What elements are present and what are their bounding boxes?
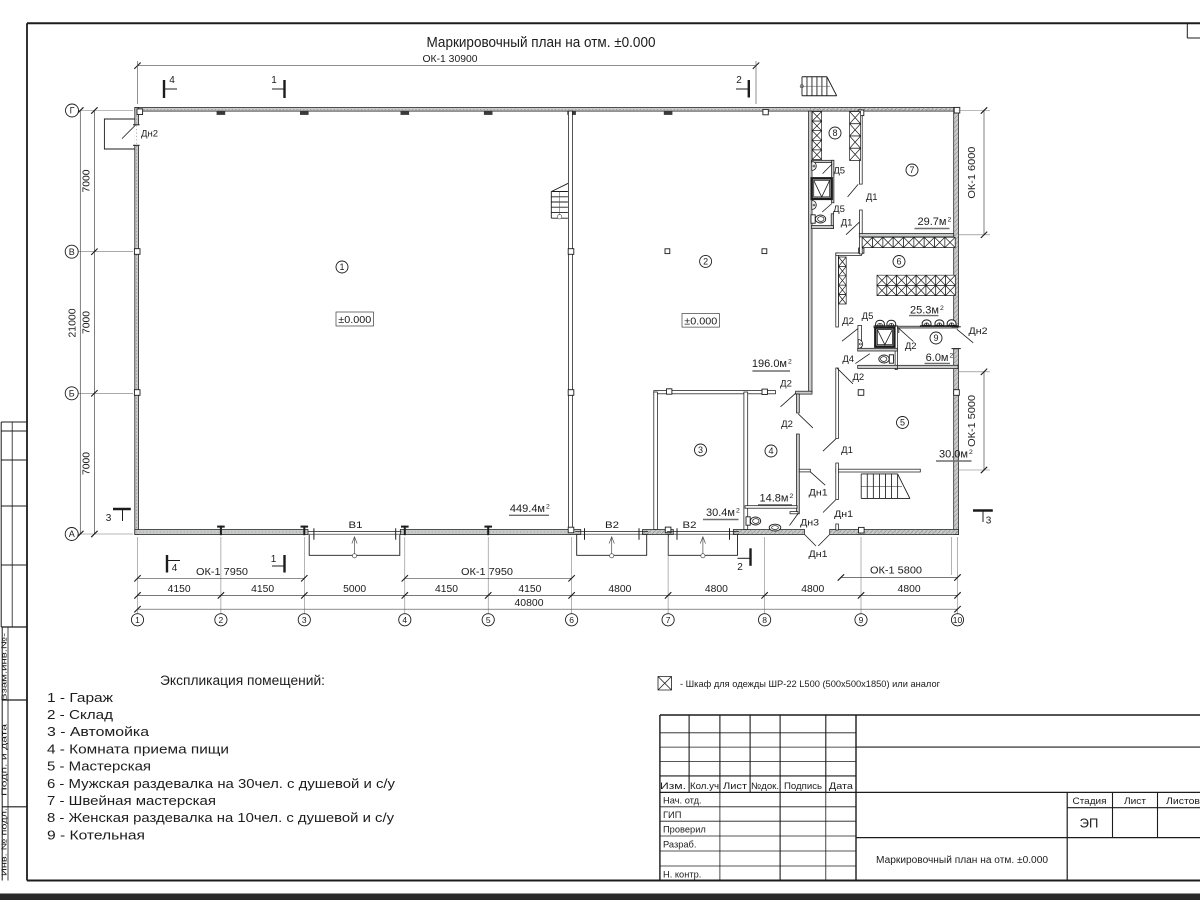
svg-text:30.4м: 30.4м — [706, 507, 735, 519]
svg-text:4150: 4150 — [251, 584, 274, 595]
svg-text:2: 2 — [736, 75, 742, 86]
svg-text:2: 2 — [950, 353, 954, 360]
svg-text:Д2: Д2 — [852, 372, 864, 383]
svg-text:2: 2 — [969, 449, 973, 456]
svg-text:Д1: Д1 — [866, 192, 878, 203]
svg-text:4: 4 — [169, 75, 175, 86]
svg-text:9: 9 — [859, 615, 864, 625]
svg-text:9 - Котельная: 9 - Котельная — [47, 827, 145, 842]
svg-text:ОК-1 30900: ОК-1 30900 — [423, 54, 478, 65]
svg-text:6.0м: 6.0м — [926, 352, 949, 364]
svg-text:4800: 4800 — [898, 584, 921, 595]
svg-text:Д5: Д5 — [862, 311, 874, 322]
svg-text:4150: 4150 — [168, 584, 191, 595]
svg-text:2: 2 — [736, 508, 740, 515]
svg-text:5000: 5000 — [343, 584, 366, 595]
svg-text:Д1: Д1 — [841, 445, 853, 456]
svg-text:Проверил: Проверил — [663, 824, 706, 834]
svg-text:Д5: Д5 — [833, 166, 845, 177]
svg-text:14.8м: 14.8м — [760, 493, 789, 505]
svg-text:1 - Гараж: 1 - Гараж — [47, 690, 113, 705]
svg-text:ГИП: ГИП — [663, 810, 681, 820]
svg-text:Маркировочный план на отм. ±0.: Маркировочный план на отм. ±0.000 — [427, 35, 656, 51]
svg-text:2: 2 — [703, 257, 708, 267]
svg-text:8 - Женская раздевалка на 10че: 8 - Женская раздевалка на 10чел. с душев… — [47, 810, 395, 825]
svg-text:4800: 4800 — [705, 584, 728, 595]
svg-text:Д2: Д2 — [905, 341, 917, 352]
svg-text:4 - Комната приема пищи: 4 - Комната приема пищи — [47, 741, 229, 756]
svg-text:2: 2 — [219, 615, 224, 625]
svg-text:4: 4 — [172, 563, 178, 574]
svg-text:Лист: Лист — [723, 781, 748, 791]
svg-text:±0.000: ±0.000 — [684, 315, 717, 327]
svg-text:29.7м: 29.7м — [918, 216, 947, 228]
svg-text:2 - Склад: 2 - Склад — [47, 707, 113, 722]
svg-text:ОК-1 7950: ОК-1 7950 — [461, 567, 513, 578]
svg-text:Взам.инв.№-: Взам.инв.№- — [0, 632, 9, 701]
svg-text:7000: 7000 — [82, 169, 93, 192]
svg-text:±0.000: ±0.000 — [338, 314, 371, 326]
svg-text:4800: 4800 — [801, 584, 824, 595]
svg-text:В2: В2 — [605, 520, 619, 531]
svg-text:3: 3 — [698, 445, 703, 455]
svg-text:Дата: Дата — [829, 781, 854, 791]
svg-text:30.0м: 30.0м — [939, 449, 968, 461]
svg-text:Лист: Лист — [1124, 796, 1147, 806]
svg-text:1: 1 — [339, 262, 344, 272]
svg-text:Д2: Д2 — [781, 419, 793, 430]
svg-text:Дн3: Дн3 — [800, 517, 819, 528]
svg-text:Д2: Д2 — [780, 379, 792, 390]
svg-text:6 - Мужская раздевалка на 30че: 6 - Мужская раздевалка на 30чел. с душев… — [47, 776, 396, 791]
svg-text:449.4м: 449.4м — [510, 503, 545, 515]
svg-text:2: 2 — [737, 562, 743, 573]
svg-text:Дн2: Дн2 — [969, 326, 988, 337]
svg-text:4150: 4150 — [518, 584, 541, 595]
svg-text:7000: 7000 — [82, 311, 93, 334]
svg-text:2: 2 — [788, 359, 792, 366]
svg-text:6: 6 — [896, 257, 901, 267]
svg-text:7: 7 — [909, 165, 914, 175]
svg-text:4: 4 — [402, 615, 407, 625]
svg-text:Стадия: Стадия — [1073, 796, 1107, 806]
svg-text:Дн1: Дн1 — [809, 488, 828, 499]
svg-text:2: 2 — [790, 493, 794, 500]
svg-text:№док.: №док. — [751, 781, 779, 791]
svg-text:7 - Швейная мастерская: 7 - Швейная мастерская — [47, 793, 216, 808]
svg-text:Кол.уч: Кол.уч — [690, 781, 719, 791]
svg-text:2: 2 — [940, 305, 944, 312]
svg-text:Листов: Листов — [1166, 796, 1200, 806]
svg-text:Г: Г — [70, 106, 75, 116]
svg-text:Дн1: Дн1 — [834, 509, 853, 520]
svg-text:8: 8 — [832, 128, 837, 138]
svg-text:В2: В2 — [683, 520, 697, 531]
svg-text:Нач. отд.: Нач. отд. — [663, 796, 702, 806]
svg-text:3: 3 — [986, 516, 992, 527]
svg-text:Дн2: Дн2 — [141, 129, 158, 139]
svg-text:1: 1 — [271, 554, 277, 565]
svg-text:ЭП: ЭП — [1080, 816, 1099, 831]
svg-text:Д1: Д1 — [841, 218, 853, 229]
svg-text:3: 3 — [302, 615, 307, 625]
svg-text:10: 10 — [953, 615, 963, 625]
svg-text:5 - Мастерская: 5 - Мастерская — [47, 759, 151, 774]
svg-text:7: 7 — [666, 615, 671, 625]
svg-text:А: А — [69, 529, 75, 539]
svg-text:5: 5 — [900, 418, 905, 428]
svg-text:Разраб.: Разраб. — [663, 840, 696, 850]
svg-text:1: 1 — [135, 615, 140, 625]
svg-text:2: 2 — [948, 217, 952, 224]
svg-text:1: 1 — [271, 75, 277, 86]
svg-text:196.0м: 196.0м — [752, 358, 787, 370]
svg-text:Д2: Д2 — [842, 316, 854, 327]
svg-text:ОК-1 5000: ОК-1 5000 — [967, 394, 978, 446]
svg-text:Н. контр.: Н. контр. — [663, 869, 701, 879]
svg-text:9: 9 — [933, 333, 938, 343]
svg-text:4150: 4150 — [435, 584, 458, 595]
svg-text:Маркировочный план на отм. ±0.: Маркировочный план на отм. ±0.000 — [876, 855, 1048, 866]
svg-text:3 - Автомойка: 3 - Автомойка — [47, 724, 150, 739]
svg-text:Д4: Д4 — [842, 354, 854, 365]
svg-text:Изм.: Изм. — [660, 781, 686, 791]
svg-text:8: 8 — [762, 615, 767, 625]
svg-text:Д5: Д5 — [833, 204, 845, 215]
svg-text:6: 6 — [569, 615, 574, 625]
svg-text:- Шкаф для одежды ШР-22 L500 (: - Шкаф для одежды ШР-22 L500 (500x500x18… — [680, 679, 941, 690]
svg-text:Экспликация помещений:: Экспликация помещений: — [160, 673, 325, 688]
svg-text:7000: 7000 — [82, 452, 93, 475]
svg-text:Дн1: Дн1 — [809, 549, 828, 560]
svg-text:5: 5 — [486, 615, 491, 625]
svg-text:3: 3 — [106, 513, 112, 524]
svg-text:40800: 40800 — [515, 598, 544, 609]
svg-text:21000: 21000 — [68, 308, 79, 337]
svg-text:ОК-1 5800: ОК-1 5800 — [870, 566, 922, 577]
svg-text:В: В — [69, 247, 75, 257]
svg-text:2: 2 — [546, 504, 550, 511]
svg-text:4800: 4800 — [608, 584, 631, 595]
svg-text:Б: Б — [69, 389, 75, 399]
svg-text:В1: В1 — [349, 520, 363, 531]
svg-text:Подп. и дата: Подп. и дата — [0, 723, 9, 796]
svg-text:4: 4 — [768, 446, 773, 456]
svg-text:25.3м: 25.3м — [910, 305, 939, 317]
svg-text:ОК-1 6000: ОК-1 6000 — [967, 146, 978, 198]
svg-text:Инв. № подл.: Инв. № подл. — [0, 808, 9, 876]
svg-text:Подпись: Подпись — [784, 781, 822, 791]
svg-text:ОК-1 7950: ОК-1 7950 — [196, 567, 248, 578]
